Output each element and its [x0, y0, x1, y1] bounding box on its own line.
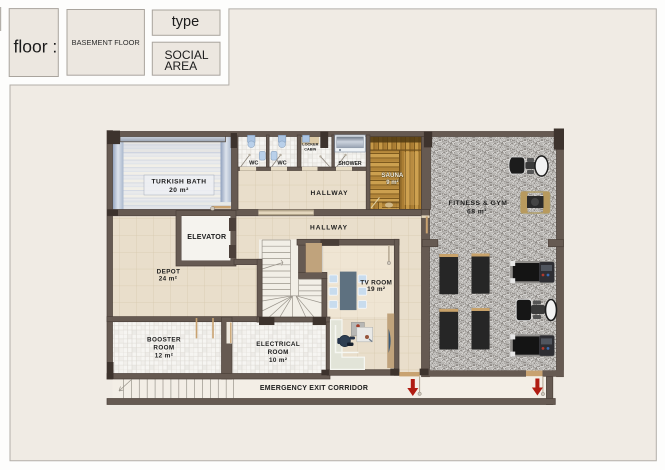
- svg-text:12 m²: 12 m²: [155, 352, 173, 359]
- svg-text:EMERGENCY EXIT CORRIDOR: EMERGENCY EXIT CORRIDOR: [260, 385, 368, 392]
- svg-text:FITNESS & GYM: FITNESS & GYM: [449, 200, 508, 207]
- svg-text:68 m²: 68 m²: [467, 208, 487, 215]
- svg-text:ROOM: ROOM: [268, 349, 289, 356]
- svg-text:LOCKER: LOCKER: [302, 143, 318, 147]
- svg-text:SAUNA: SAUNA: [381, 172, 404, 179]
- svg-text:type: type: [172, 14, 199, 30]
- svg-text:AREA: AREA: [165, 59, 198, 73]
- svg-text:9 m²: 9 m²: [386, 179, 398, 186]
- svg-text:19 m²: 19 m²: [367, 286, 385, 293]
- svg-text:24 m²: 24 m²: [159, 276, 177, 283]
- svg-text:SHOWER: SHOWER: [338, 161, 362, 167]
- svg-text:BOOSTER: BOOSTER: [147, 336, 181, 343]
- svg-text:10 m²: 10 m²: [269, 357, 287, 364]
- svg-text:floor :: floor :: [14, 37, 58, 57]
- svg-text:ELEVATOR: ELEVATOR: [187, 233, 226, 241]
- svg-text:HALLWAY: HALLWAY: [310, 224, 348, 231]
- svg-text:CABIN: CABIN: [304, 147, 316, 151]
- svg-text:ROOM: ROOM: [153, 344, 174, 351]
- svg-text:20 m²: 20 m²: [169, 187, 189, 194]
- svg-text:HALLWAY: HALLWAY: [311, 190, 349, 197]
- svg-text:WC: WC: [249, 161, 258, 167]
- svg-text:DEPOT: DEPOT: [157, 269, 181, 276]
- svg-text:BASEMENT FLOOR: BASEMENT FLOOR: [72, 38, 140, 47]
- svg-text:TURKISH BATH: TURKISH BATH: [152, 179, 207, 186]
- svg-text:ELECTRICAL: ELECTRICAL: [256, 341, 300, 348]
- svg-text:WC: WC: [277, 161, 286, 167]
